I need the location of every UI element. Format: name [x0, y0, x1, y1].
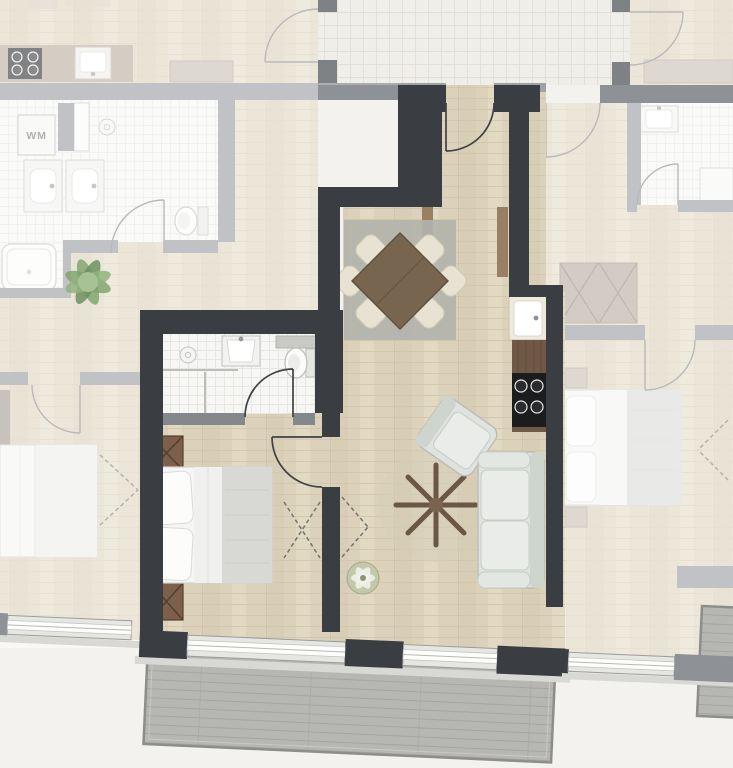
kitchen-sink [509, 296, 548, 340]
kitchen-counter-end [512, 427, 546, 432]
kitchenette [509, 296, 548, 432]
kitchen-hob [512, 373, 546, 427]
kitchen-counter [512, 340, 546, 373]
bathroom-sink [222, 336, 260, 366]
floor-plan-svg: WM [0, 0, 733, 768]
bathroom-shelf [276, 336, 321, 348]
window-main-living [403, 645, 498, 670]
pouf [347, 562, 379, 594]
shower-drain [180, 347, 196, 363]
sofa [478, 452, 544, 588]
coffee-table-star [396, 465, 476, 545]
dining-set [332, 220, 470, 340]
fade-corridor [318, 0, 630, 85]
window-right-apartment [568, 652, 675, 676]
floor-plan: WM [0, 0, 733, 768]
hall-console [497, 207, 508, 277]
main-bed [152, 467, 272, 583]
main-toilet [285, 348, 315, 378]
